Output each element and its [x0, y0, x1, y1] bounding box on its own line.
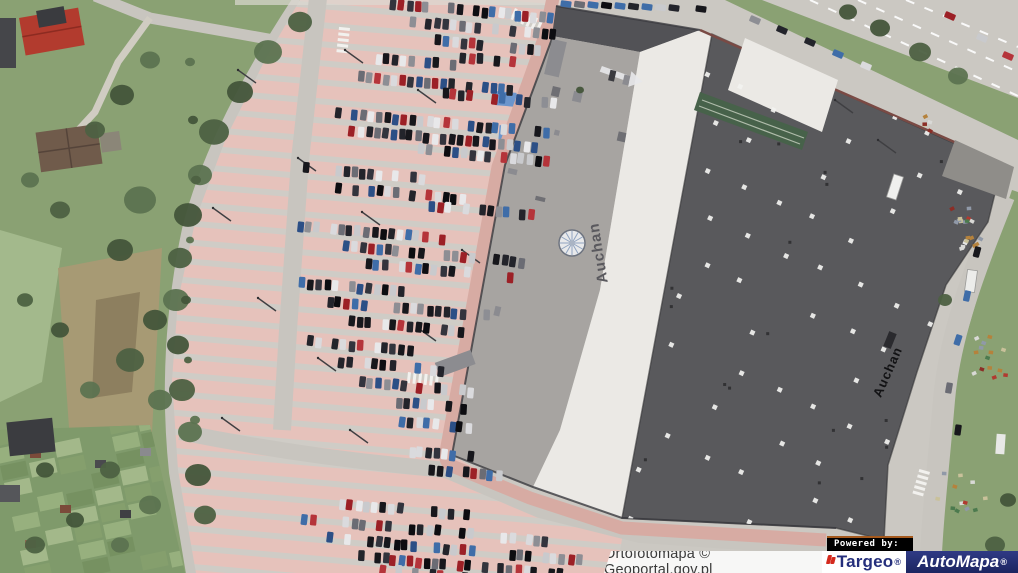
- dome-skylight: [559, 230, 585, 256]
- targeo-logo[interactable]: Targeo ®: [822, 551, 906, 573]
- automapa-logo[interactable]: AutoMapa ®: [906, 551, 1018, 573]
- targeo-wordmark: Targeo: [837, 552, 894, 572]
- attribution-bar: Ortofotomapa © Geoportal.gov.pl: [604, 551, 822, 573]
- automapa-wordmark: AutoMapa: [917, 552, 999, 572]
- map-viewport: Auchan Auchan Ortofotomapa © Geoportal.: [0, 0, 1018, 573]
- truck: [995, 434, 1005, 455]
- targeo-mark-icon: [827, 555, 835, 564]
- aerial-map-canvas[interactable]: Auchan Auchan: [0, 0, 1018, 573]
- powered-by-label: Powered by:: [827, 536, 913, 551]
